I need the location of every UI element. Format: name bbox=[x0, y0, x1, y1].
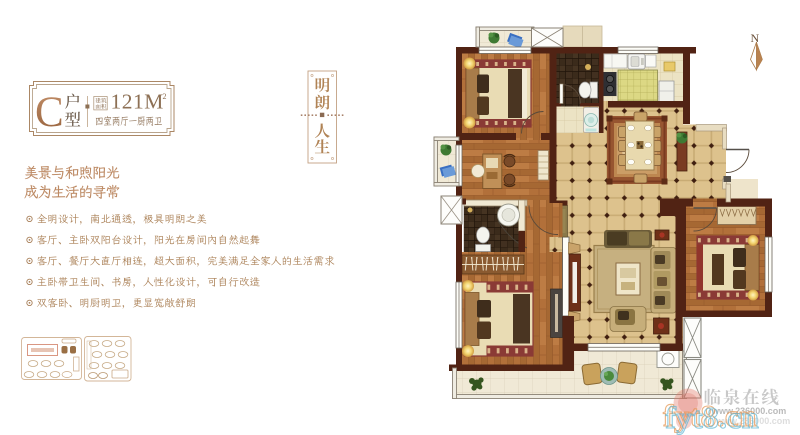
svg-text:121M: 121M bbox=[111, 90, 164, 114]
svg-text:N: N bbox=[751, 31, 760, 45]
svg-text:2: 2 bbox=[163, 92, 167, 101]
svg-text:fyt8.cn: fyt8.cn bbox=[666, 400, 760, 435]
svg-text:C: C bbox=[35, 89, 64, 136]
